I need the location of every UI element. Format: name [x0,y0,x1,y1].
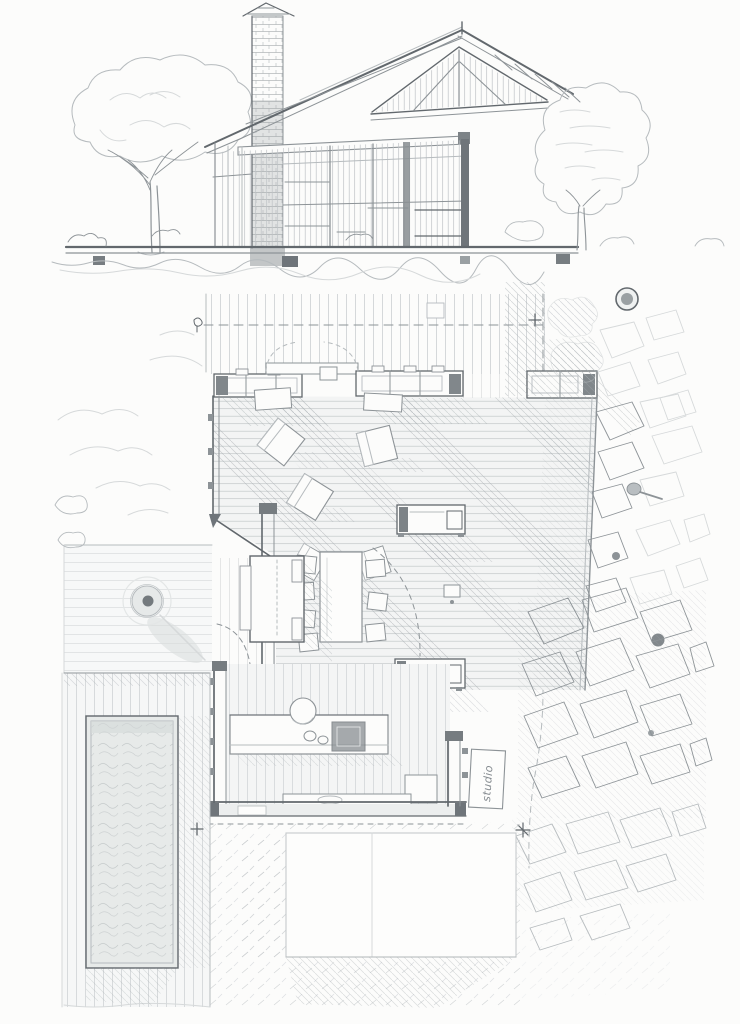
dining-chair [365,623,386,642]
plant-tick [194,318,202,332]
cushion [364,393,403,412]
bench-planter-b [356,371,463,396]
hearth [240,566,251,630]
east-wall [445,731,468,806]
dining-chair [365,559,385,578]
garden-light [627,483,641,495]
top-deck [204,294,545,374]
pool-deck [62,673,210,1007]
sketch-sheet: studio [0,0,740,1024]
stone-patio [505,282,714,950]
bush [548,297,598,337]
plan-view: studio [55,282,740,1008]
lawn-slab [286,833,516,957]
south-wall [208,802,466,824]
studio-label: studio [480,765,496,803]
left-terrace [55,496,212,676]
kitchen-wing [208,661,450,806]
facade-post [403,142,410,247]
chimney-foundation [250,248,285,266]
bench-low [266,363,358,374]
dining-chair [367,592,388,611]
gable-siding [375,50,546,112]
house-facade [213,139,469,248]
cushion [254,388,291,410]
post-footing [427,303,444,318]
round-table [290,698,316,724]
pencil-drawing: studio [0,0,740,1024]
corner-post [461,139,469,248]
faint-tree-canopy [58,331,202,515]
tree-right [535,83,650,250]
elevation-view [52,3,724,285]
armchair [356,425,397,466]
studio-slab: studio [469,749,506,809]
